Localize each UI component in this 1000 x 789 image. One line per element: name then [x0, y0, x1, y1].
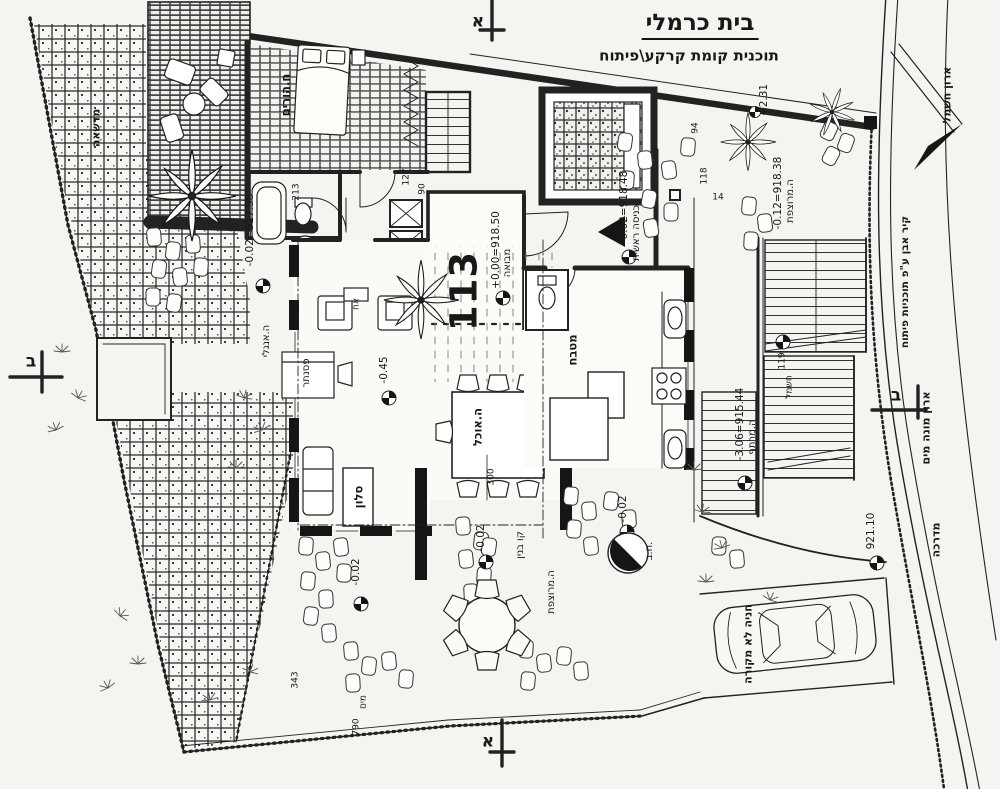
- dim-213: 213: [293, 183, 302, 200]
- dim-127: 127: [403, 168, 412, 185]
- dining-label: ה.אוכל: [472, 408, 484, 446]
- stone-wall-note: קיר אבן ע"פ תוכניות פיתוח: [900, 216, 911, 348]
- elevation-upper: +2.31: [759, 84, 770, 116]
- plot-number: 113: [446, 251, 483, 331]
- kitchen-label: מטבח: [567, 334, 579, 365]
- garden-table: [442, 580, 532, 670]
- lawn-label: מדשאה: [91, 109, 102, 147]
- parking: [700, 578, 894, 698]
- section-marker-left: ב: [26, 354, 36, 371]
- fireplace-label: אח: [353, 298, 362, 310]
- building-line-label: קו בנין: [516, 531, 526, 559]
- paved-court-right-label: ה.מרוצפת: [786, 179, 796, 223]
- inspection-chamber-symbol: [608, 533, 648, 573]
- electric-cabinet-label: ארון חשמל: [942, 67, 953, 124]
- dim-300: 300: [488, 468, 497, 485]
- floor-plan-canvas: בית כרמלי תוכנית קומת קרקע\פיתוח 113 א א…: [0, 0, 1000, 789]
- english-court-label: ה.אנגלי: [262, 325, 272, 357]
- drawing-subtitle: תוכנית קומת קרקע\פיתוח: [599, 49, 779, 64]
- dim-118: 118: [701, 167, 710, 184]
- elevation-basement: -3.06=915.44: [735, 388, 746, 461]
- floor-plan-drawing: [0, 0, 1000, 789]
- elevation-living-step: -0.45: [379, 356, 390, 383]
- elevation-entrance: -0.02=918.48: [619, 171, 630, 244]
- basement-court-label: ה.מרתף: [748, 419, 758, 454]
- parents-room-label: ח.הורים: [280, 74, 292, 116]
- paved-court-bottom-label: ה.מרוצפת: [547, 570, 557, 614]
- elevation-court-b: -0.02: [476, 524, 487, 551]
- car: [712, 593, 878, 675]
- water-meter-cabinet-label: ארון מונה מים: [921, 392, 932, 465]
- inspection-chamber-label: ח.ב.: [645, 542, 655, 561]
- elevation-court-c: -0.02: [618, 495, 629, 522]
- uncovered-parking-label: חניה לא מקורה: [743, 604, 754, 684]
- water-note: מים: [360, 695, 369, 709]
- dim-94: 94: [692, 122, 701, 133]
- bed: [294, 45, 351, 136]
- elevation-west-terrace: -0.02=917.98: [245, 194, 256, 267]
- main-entrance-label: כניסה ראשית: [632, 205, 642, 261]
- electric-note: חשמל: [786, 375, 795, 398]
- interior-staircase: [426, 92, 470, 172]
- section-marker-top: א: [472, 14, 484, 31]
- elevation-foyer: +0.00=918.50: [491, 211, 502, 289]
- elevation-court-a: -0.02: [351, 558, 362, 585]
- living-room-label: סלון: [353, 486, 365, 509]
- elevation-road: 921.10: [866, 513, 877, 550]
- concrete-pad: [97, 338, 171, 420]
- sidewalk-label: מדרכה: [931, 523, 942, 558]
- drawing-title: בית כרמלי: [642, 12, 759, 40]
- section-marker-bottom: א: [482, 734, 494, 751]
- elevation-court-right: -0.12=918.38: [773, 157, 784, 230]
- dim-343: 343: [292, 671, 301, 688]
- dim-790: 790: [353, 718, 362, 735]
- kitchen: [524, 268, 694, 470]
- dim-14: 14: [712, 194, 723, 203]
- piano-label: פסנתר: [302, 359, 312, 388]
- foyer-label: מבואה: [503, 249, 513, 278]
- section-marker-right: ב: [891, 388, 901, 405]
- dim-119: 119: [779, 352, 788, 369]
- dim-90: 90: [419, 183, 428, 194]
- road: [870, 0, 996, 789]
